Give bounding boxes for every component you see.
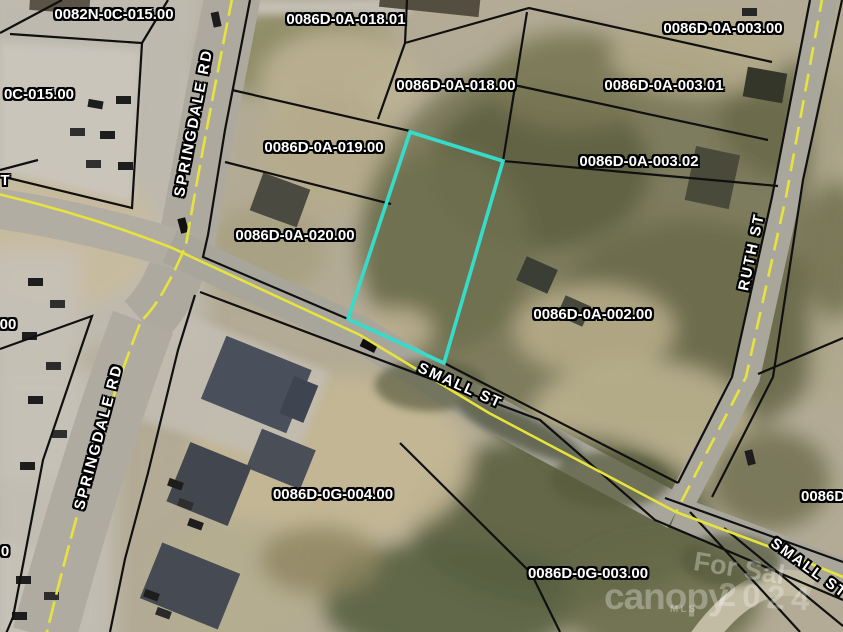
parcel-id-label: 0082N-0C-015.00 [54, 7, 173, 23]
parcel-id-label: 0086D-0G-003.00 [528, 566, 648, 582]
street-name-label-partial: T [0, 173, 9, 189]
parcel-id-label: 0086D-0A-018.00 [396, 78, 515, 94]
parcel-id-label: 0086D-0A-018.01 [286, 12, 405, 28]
parcel-id-label-partial: 0C-015.00 [4, 87, 74, 103]
parcel-id-label: 0086D-0A-002.00 [533, 307, 652, 323]
parcel-id-label: 0086D-0A-003.02 [579, 154, 698, 170]
parcel-id-label-partial: 0086D [801, 489, 843, 505]
parcel-id-label: 0086D-0A-020.00 [235, 228, 354, 244]
parcel-id-label: 0086D-0A-003.01 [604, 78, 723, 94]
aerial-imagery-layer [0, 0, 843, 632]
parcel-id-label-partial: 00 [0, 317, 16, 333]
parcel-map[interactable]: 0082N-0C-015.00 0086D-0A-018.01 0086D-0A… [0, 0, 843, 632]
parcel-id-label: 0086D-0A-019.00 [264, 140, 383, 156]
parcel-id-label: 0086D-0G-004.00 [273, 487, 393, 503]
parcel-id-label-partial: 0 [1, 544, 9, 560]
parcel-id-label: 0086D-0A-003.00 [663, 21, 782, 37]
